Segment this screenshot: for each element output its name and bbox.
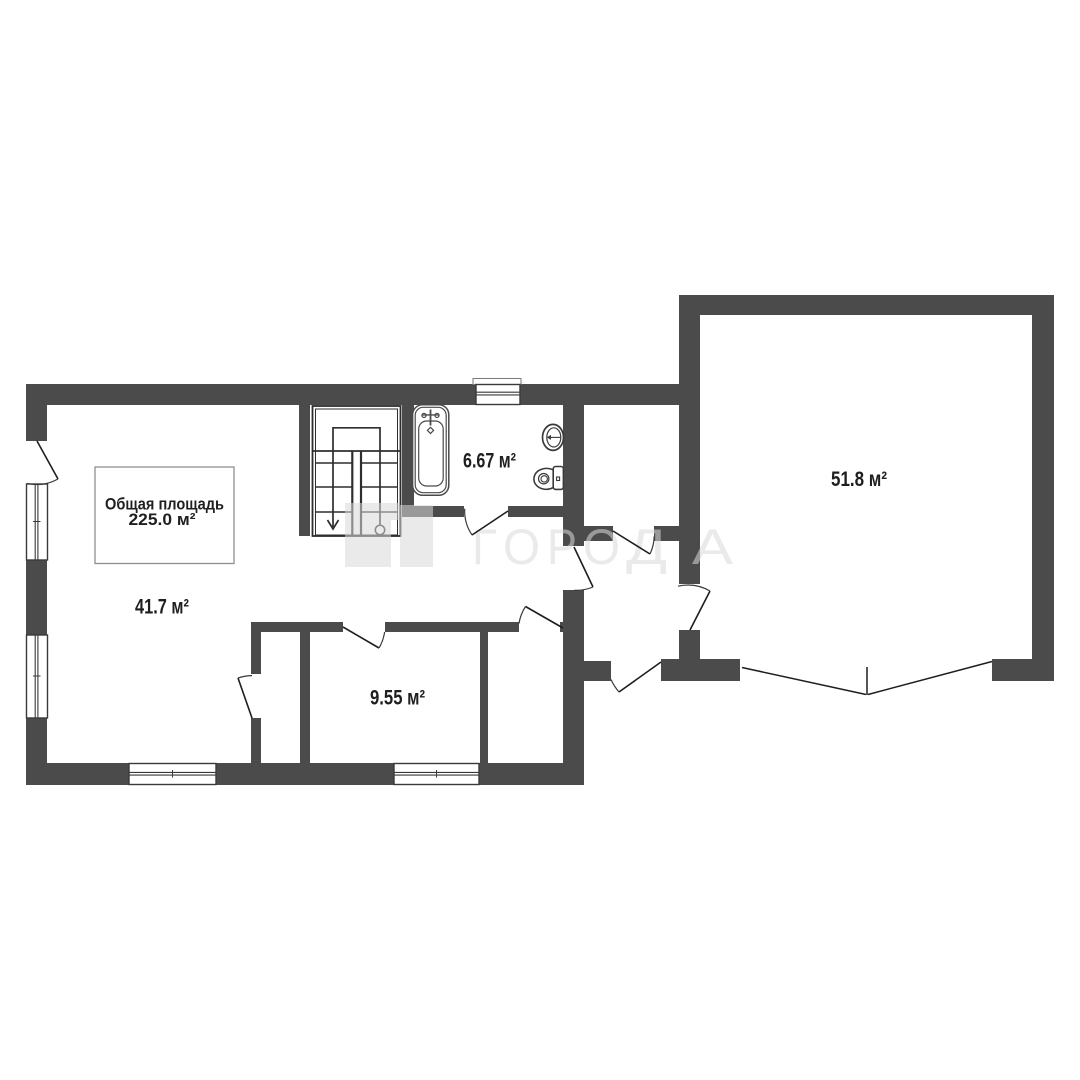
- svg-text:Р: Р: [547, 519, 577, 575]
- svg-text:9.55 м²: 9.55 м²: [370, 687, 425, 710]
- svg-text:О: О: [503, 519, 540, 575]
- svg-text:225.0 м²: 225.0 м²: [129, 510, 196, 529]
- svg-text:41.7 м²: 41.7 м²: [135, 596, 189, 619]
- svg-text:Д: Д: [626, 519, 667, 575]
- svg-text:6.67 м²: 6.67 м²: [463, 450, 516, 473]
- svg-text:О: О: [583, 519, 620, 575]
- svg-text:51.8 м²: 51.8 м²: [831, 468, 887, 491]
- svg-text:А: А: [692, 519, 734, 575]
